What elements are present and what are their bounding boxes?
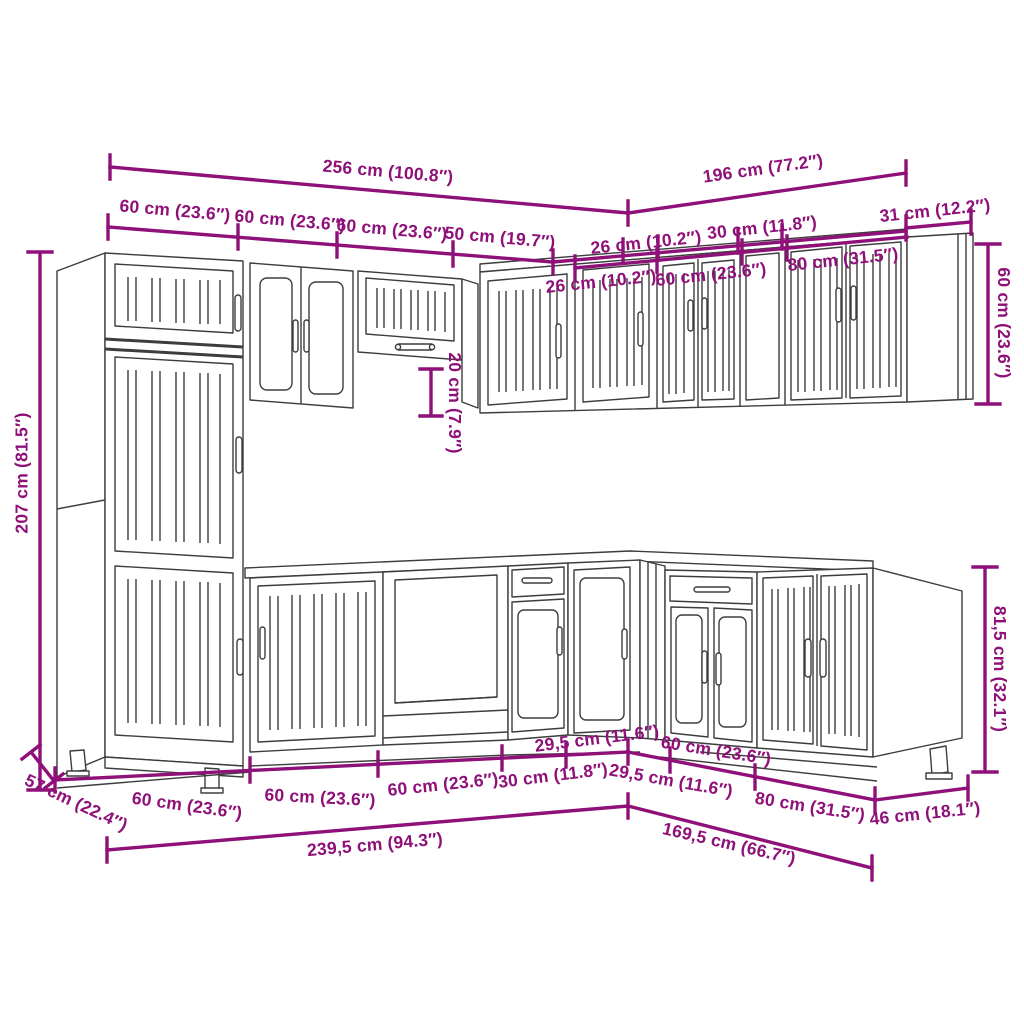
wall-cabinet-60 bbox=[250, 263, 353, 408]
base-cabinet-80 bbox=[757, 568, 873, 757]
base-cabinet-60-right bbox=[665, 570, 757, 748]
kitchen-line-art bbox=[0, 0, 1024, 1024]
dim-line-20 bbox=[420, 369, 442, 416]
dim-line-31 bbox=[906, 222, 971, 228]
corner-base-cabinet bbox=[568, 560, 665, 740]
oven-cabinet-60 bbox=[383, 566, 508, 745]
tall-cabinet bbox=[57, 253, 250, 793]
kitchen-dimension-diagram: 256 cm (100.8″) 196 cm (77.2″) 60 cm (23… bbox=[0, 0, 1024, 1024]
dim-label-hood-gap: 20 cm (7.9″) bbox=[445, 352, 463, 453]
base-cabinet-60-left bbox=[250, 572, 383, 752]
dim-line-207 bbox=[28, 252, 52, 790]
cabinets bbox=[57, 229, 973, 793]
base-cabinet-30 bbox=[508, 563, 568, 740]
dim-label-tall-height: 207 cm (81.5″) bbox=[13, 412, 31, 533]
dim-label-wall-height: 60 cm (23.6″) bbox=[994, 267, 1012, 378]
dim-label-base-height: 81,5 cm (32.1″) bbox=[990, 606, 1008, 732]
dim-line-46 bbox=[875, 788, 968, 800]
